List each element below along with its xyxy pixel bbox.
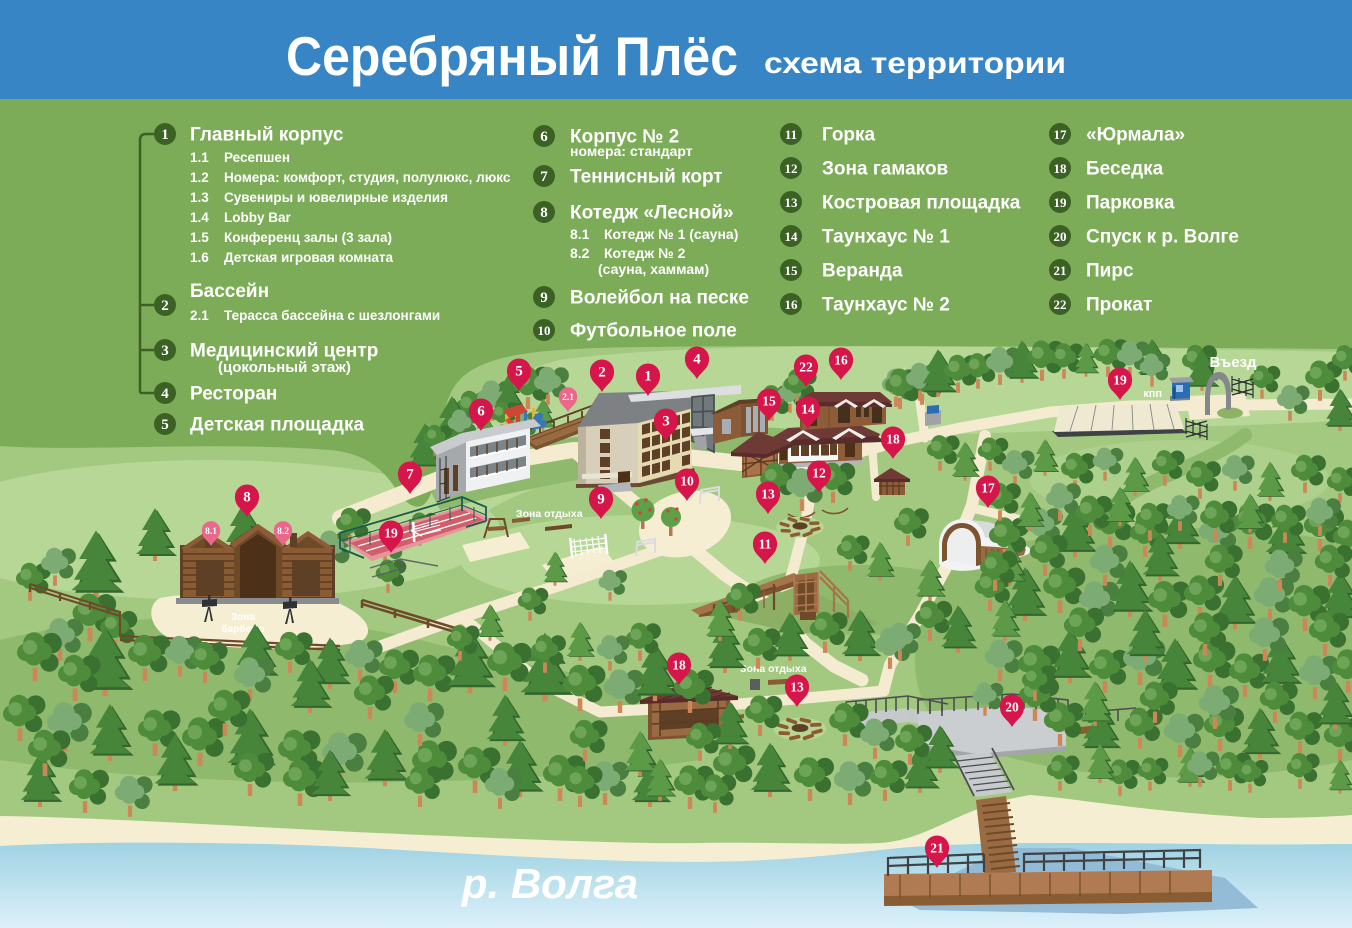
- svg-text:2: 2: [161, 298, 169, 314]
- svg-text:2: 2: [598, 365, 606, 381]
- svg-text:9: 9: [597, 492, 605, 508]
- svg-text:Терасса бассейна с шезлонгами: Терасса бассейна с шезлонгами: [224, 308, 440, 323]
- svg-text:Номера: комфорт, студия, полул: Номера: комфорт, студия, полулюкс, люкс: [224, 170, 511, 185]
- svg-text:Прокат: Прокат: [1086, 295, 1152, 316]
- svg-text:Конференц залы (3 зала): Конференц залы (3 зала): [224, 230, 392, 245]
- svg-text:16: 16: [834, 353, 848, 368]
- svg-text:8.2: 8.2: [277, 527, 289, 537]
- svg-text:Котедж № 1 (сауна): Котедж № 1 (сауна): [604, 226, 738, 242]
- svg-text:кпп: кпп: [1143, 388, 1162, 400]
- svg-text:21: 21: [930, 841, 944, 856]
- svg-text:9: 9: [540, 290, 548, 306]
- svg-text:15: 15: [785, 263, 799, 278]
- svg-text:3: 3: [662, 414, 670, 430]
- svg-text:22: 22: [1054, 297, 1067, 312]
- svg-text:11: 11: [785, 127, 797, 142]
- svg-text:5: 5: [515, 364, 523, 380]
- svg-text:6: 6: [540, 129, 548, 145]
- svg-text:7: 7: [406, 467, 414, 483]
- svg-text:1: 1: [161, 127, 169, 143]
- svg-text:«Юрмала»: «Юрмала»: [1086, 125, 1185, 146]
- svg-text:Ресторан: Ресторан: [190, 384, 277, 405]
- svg-text:17: 17: [981, 481, 995, 496]
- svg-text:2.1: 2.1: [190, 308, 209, 323]
- svg-text:1.1: 1.1: [190, 150, 209, 165]
- svg-text:1.2: 1.2: [190, 170, 209, 185]
- svg-text:Горка: Горка: [822, 125, 876, 146]
- svg-text:1.6: 1.6: [190, 250, 209, 265]
- svg-text:р. Волга: р. Волга: [461, 860, 638, 907]
- svg-text:15: 15: [762, 394, 776, 409]
- svg-text:Веранда: Веранда: [822, 261, 903, 282]
- svg-text:8.1: 8.1: [570, 226, 590, 242]
- svg-text:8: 8: [243, 490, 251, 506]
- svg-text:6: 6: [477, 404, 485, 420]
- svg-text:Зона отдыха: Зона отдыха: [740, 663, 807, 675]
- svg-text:Зона отдыха: Зона отдыха: [516, 508, 583, 520]
- svg-text:Теннисный корт: Теннисный корт: [570, 167, 723, 188]
- svg-text:Главный корпус: Главный корпус: [190, 125, 344, 146]
- svg-text:16: 16: [785, 297, 799, 312]
- svg-text:20: 20: [1054, 229, 1067, 244]
- svg-text:10: 10: [680, 474, 694, 489]
- svg-text:Таунхаус № 1: Таунхаус № 1: [822, 227, 950, 248]
- svg-text:19: 19: [1054, 195, 1068, 210]
- svg-text:22: 22: [799, 360, 813, 375]
- svg-text:Парковка: Парковка: [1086, 193, 1175, 214]
- svg-text:17: 17: [1054, 127, 1068, 142]
- svg-text:Котедж «Лесной»: Котедж «Лесной»: [570, 203, 734, 224]
- svg-text:номера: стандарт: номера: стандарт: [570, 143, 693, 159]
- svg-text:Lobby Bar: Lobby Bar: [224, 210, 292, 225]
- svg-text:5: 5: [161, 417, 169, 433]
- svg-text:4: 4: [693, 352, 701, 368]
- svg-text:Бассейн: Бассейн: [190, 281, 269, 302]
- svg-text:(цокольный этаж): (цокольный этаж): [218, 359, 351, 376]
- svg-text:1.3: 1.3: [190, 190, 209, 205]
- svg-text:(сауна, хаммам): (сауна, хаммам): [598, 261, 709, 277]
- svg-text:Пирс: Пирс: [1086, 261, 1134, 282]
- svg-text:8: 8: [540, 205, 548, 221]
- svg-text:13: 13: [790, 680, 804, 695]
- svg-text:Детская игровая комната: Детская игровая комната: [224, 250, 394, 265]
- svg-text:Въезд: Въезд: [1209, 354, 1257, 371]
- svg-text:10: 10: [538, 323, 551, 338]
- svg-text:18: 18: [1054, 161, 1068, 176]
- svg-text:14: 14: [785, 229, 799, 244]
- svg-text:Костровая площадка: Костровая площадка: [822, 193, 1021, 214]
- svg-text:Волейбол на песке: Волейбол на песке: [570, 288, 749, 309]
- svg-text:3: 3: [161, 343, 169, 359]
- svg-text:19: 19: [1113, 373, 1127, 388]
- svg-text:Детская площадка: Детская площадка: [190, 415, 364, 436]
- svg-text:8.2: 8.2: [570, 245, 590, 261]
- svg-text:Спуск к р. Волге: Спуск к р. Волге: [1086, 227, 1239, 248]
- svg-text:18: 18: [886, 432, 900, 447]
- svg-text:4: 4: [161, 386, 169, 402]
- svg-text:14: 14: [801, 402, 815, 417]
- svg-text:1.4: 1.4: [190, 210, 209, 225]
- svg-text:Таунхаус № 2: Таунхаус № 2: [822, 295, 950, 316]
- svg-text:2.1: 2.1: [562, 393, 574, 403]
- svg-text:19: 19: [384, 526, 398, 541]
- svg-text:11: 11: [759, 537, 772, 552]
- svg-text:Сувениры и ювелирные изделия: Сувениры и ювелирные изделия: [224, 190, 448, 205]
- svg-text:12: 12: [812, 466, 826, 481]
- svg-text:7: 7: [540, 169, 548, 185]
- svg-text:Серебряный Плёс: Серебряный Плёс: [286, 25, 738, 87]
- svg-text:Котедж № 2: Котедж № 2: [604, 245, 686, 261]
- svg-text:Зона: Зона: [231, 612, 255, 623]
- svg-text:Ресепшен: Ресепшен: [224, 150, 290, 165]
- svg-text:схема территории: схема территории: [764, 47, 1066, 80]
- svg-text:13: 13: [785, 195, 799, 210]
- svg-text:20: 20: [1005, 700, 1019, 715]
- svg-text:Зона гамаков: Зона гамаков: [822, 159, 948, 180]
- svg-text:1: 1: [644, 369, 652, 385]
- svg-text:12: 12: [785, 161, 798, 176]
- svg-text:Футбольное поле: Футбольное поле: [570, 321, 737, 342]
- svg-text:1.5: 1.5: [190, 230, 209, 245]
- svg-text:13: 13: [761, 487, 775, 502]
- svg-text:8.1: 8.1: [205, 527, 217, 537]
- svg-text:21: 21: [1054, 263, 1067, 278]
- svg-text:18: 18: [672, 658, 686, 673]
- svg-text:Беседка: Беседка: [1086, 159, 1164, 180]
